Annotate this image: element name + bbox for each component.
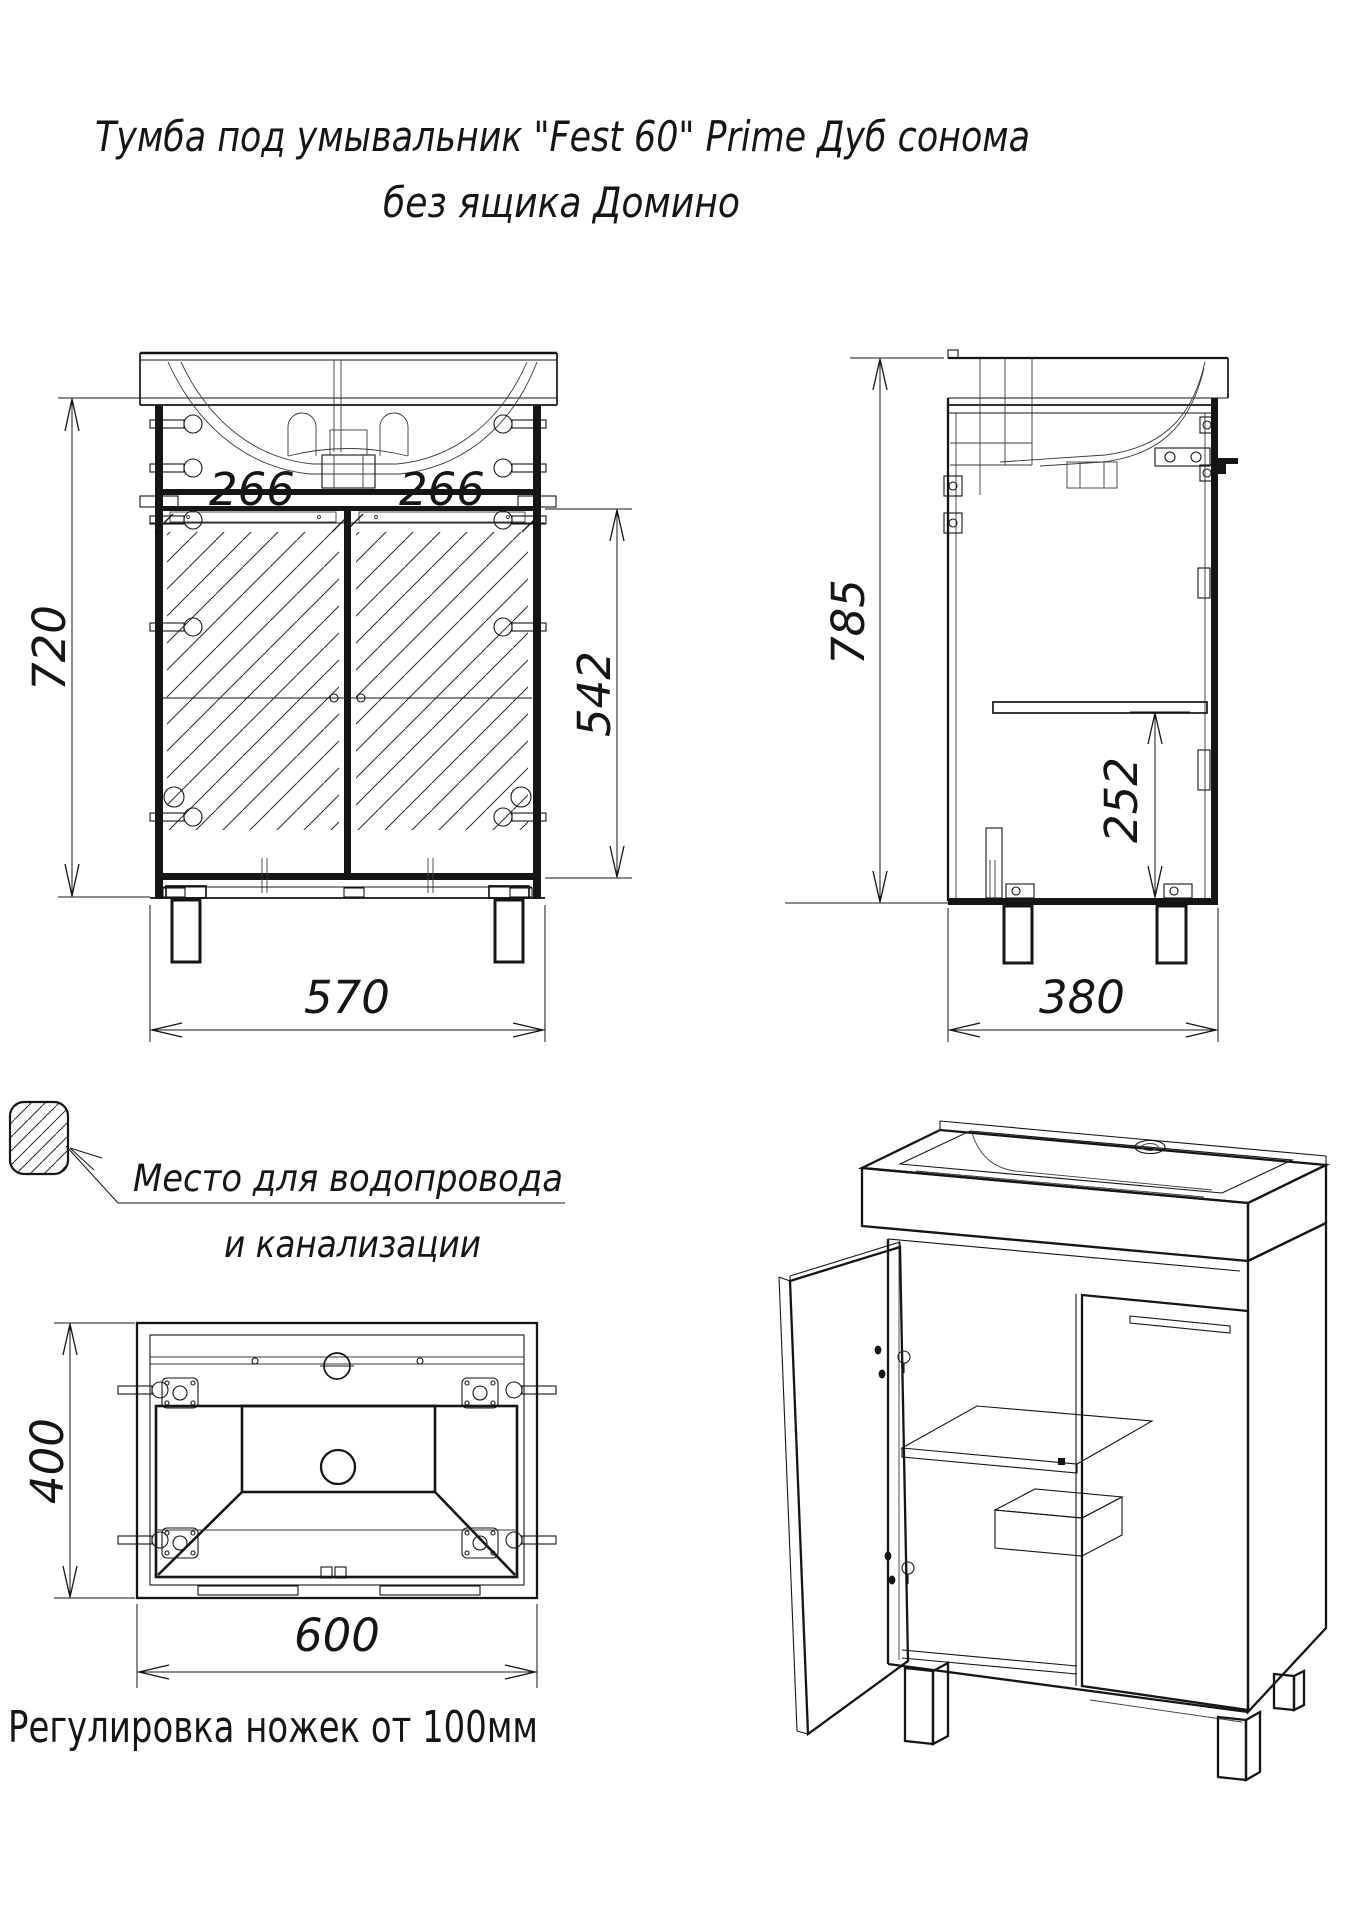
title-line-1: Тумба под умывальник "Fest 60" Prime Дуб…	[95, 112, 1030, 161]
iso-door-open	[779, 1242, 914, 1734]
dim-542: 542	[545, 509, 632, 878]
side-basin-profile	[1000, 362, 1205, 488]
dim-600: 600	[137, 1604, 537, 1688]
dim-400: 400	[21, 1323, 135, 1598]
side-legs	[1004, 906, 1186, 963]
dim-label-600: 600	[294, 1609, 380, 1662]
dim-label-785: 785	[822, 579, 875, 665]
dim-label-400: 400	[21, 1418, 74, 1504]
dim-785: 785	[822, 358, 944, 903]
door-hatch-right	[356, 532, 528, 830]
bottom-view: 400 600	[21, 1323, 556, 1688]
side-fittings	[944, 417, 1238, 790]
drawing-sheet: Тумба под умывальник "Fest 60" Prime Дуб…	[0, 0, 1358, 1920]
iso-door-hinge-holes	[875, 1346, 896, 1585]
plumbing-area-icon	[10, 1102, 68, 1174]
dim-label-266-right: 266	[399, 463, 485, 516]
dim-label-266-left: 266	[209, 463, 295, 516]
title-block: Тумба под умывальник "Fest 60" Prime Дуб…	[95, 112, 1030, 227]
iso-door-handle	[1130, 1316, 1230, 1333]
door-hatch-left	[167, 532, 339, 830]
iso-view	[779, 1121, 1326, 1780]
wall-hook	[1218, 458, 1238, 474]
footer-note: Регулировка ножек от 100мм	[8, 1702, 538, 1753]
dim-252: 252	[1095, 712, 1190, 898]
bottom-basin	[156, 1406, 517, 1577]
front-right-wall	[533, 405, 541, 899]
side-shelf	[993, 702, 1207, 713]
front-left-wall	[155, 405, 163, 899]
iso-legs	[905, 1663, 1304, 1780]
iso-interior	[902, 1406, 1152, 1674]
side-sink-slab	[948, 350, 1228, 495]
technical-drawing: Тумба под умывальник "Fest 60" Prime Дуб…	[0, 0, 1358, 1920]
title-line-2: без ящика Домино	[383, 178, 740, 227]
dim-label-720: 720	[23, 605, 76, 691]
side-bottom	[785, 828, 1218, 905]
front-view: 720 266 266 542 570	[23, 353, 632, 1042]
drain-hole	[321, 1450, 355, 1484]
dim-380: 380	[948, 908, 1218, 1042]
dim-label-570: 570	[304, 971, 390, 1024]
dim-570: 570	[150, 905, 545, 1042]
plumbing-note: Место для водопровода и канализации	[10, 1102, 565, 1266]
front-door-divider	[344, 506, 351, 880]
dim-720: 720	[23, 398, 152, 897]
dim-label-542: 542	[568, 651, 621, 737]
dim-label-380: 380	[1039, 971, 1125, 1024]
front-bottom-edge	[155, 873, 541, 880]
iso-sink	[862, 1121, 1326, 1261]
iso-door-right	[1082, 1295, 1248, 1710]
side-view: 785 252 380	[785, 350, 1238, 1042]
plumbing-note-line-1: Место для водопровода	[133, 1157, 563, 1200]
plumbing-note-line-2: и канализации	[224, 1223, 481, 1266]
dim-label-252: 252	[1095, 757, 1148, 843]
front-legs	[172, 900, 523, 962]
iso-shelf	[902, 1406, 1152, 1464]
front-sink-slab	[140, 353, 557, 405]
